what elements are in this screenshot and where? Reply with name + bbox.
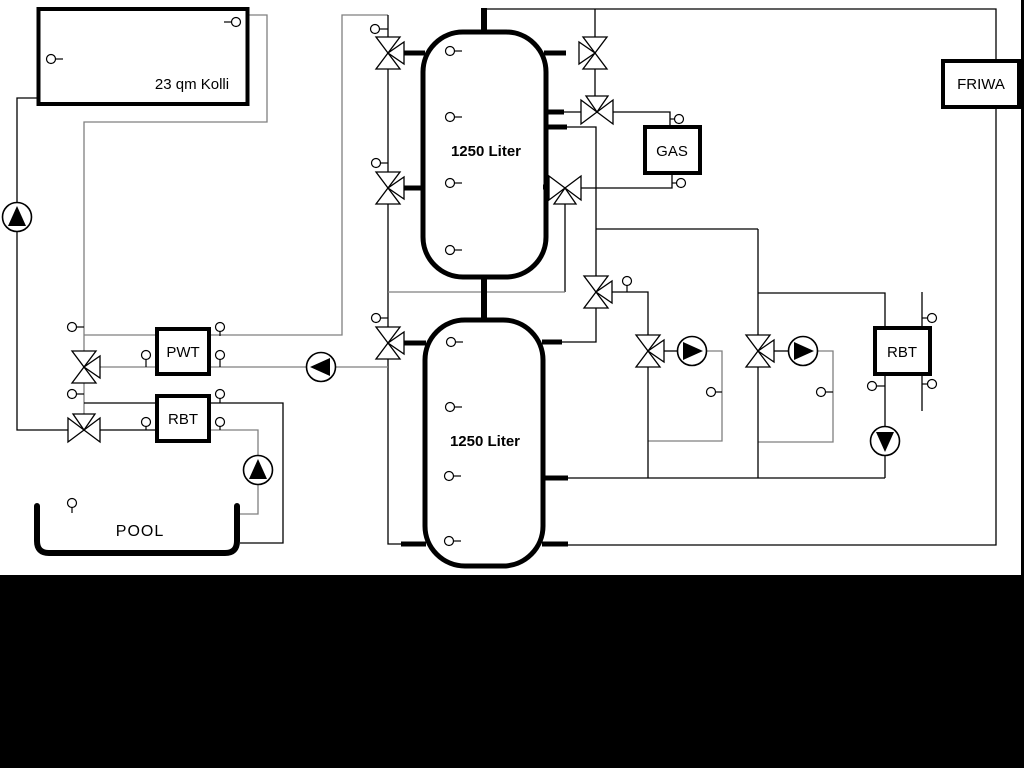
sensor-circuit1-flow (707, 388, 723, 397)
tank1-label: 1250 Liter (451, 143, 521, 160)
pwt-label: PWT (166, 344, 199, 361)
pool-label: POOL (116, 523, 164, 540)
sensor-pwt-top-right (216, 323, 225, 337)
boiler-return-pipe (581, 173, 672, 188)
circuit1-pump (678, 337, 707, 366)
sensor-rbt1-bottom-left (142, 418, 151, 431)
sensor-pwt-bottom-right (216, 351, 225, 368)
three-way-valve-solar-pool (68, 414, 100, 442)
collector-label: 23 qm Kolli (155, 76, 229, 93)
friwa-label: FRIWA (957, 76, 1005, 93)
sensor-pwt-left (68, 323, 85, 332)
sensor-riser-mid (372, 159, 389, 168)
circuit1-feed-pipe (612, 292, 648, 335)
sensor-distributor-branch (623, 277, 632, 293)
three-way-valve-solar-pwt (72, 351, 100, 383)
pwt-secondary-pump (307, 353, 336, 382)
sensor-rbt1-top-right (216, 390, 225, 404)
three-way-valve-heating-distributor (584, 276, 612, 308)
three-way-valve-tank2-top-left (376, 327, 404, 359)
pool-pump (244, 456, 273, 485)
sensor-boiler-return (672, 179, 686, 188)
solar-flow-pipe (17, 98, 68, 430)
solar-pump (3, 203, 32, 232)
sensor-rbt1-bottom-right (216, 418, 225, 431)
rbt2-label: RBT (887, 344, 917, 361)
rbt1-label: RBT (168, 411, 198, 428)
sensor-pwt-bottom-left (142, 351, 151, 368)
three-way-valve-boiler-return (549, 176, 581, 204)
three-way-valve-circuit1-mixer (636, 335, 664, 367)
three-way-valve-tank1-top-left (376, 37, 404, 69)
rbt2-return-pump (871, 427, 900, 456)
three-way-valve-circuit2-mixer (746, 335, 774, 367)
schematic-page: 23 qm Kolli 1250 Liter 1250 Liter PWT RB… (0, 0, 1024, 768)
sensor-pool (68, 499, 77, 514)
sensor-rbt2-right-bottom (922, 380, 937, 389)
sensor-riser-top (371, 25, 389, 34)
sensor-rbt1-left (68, 390, 85, 399)
hydraulic-schematic-canvas: 23 qm Kolli 1250 Liter 1250 Liter PWT RB… (0, 0, 1024, 768)
three-way-valve-tank1-mid-left (376, 172, 404, 204)
mid-distribution-pipe (562, 127, 596, 342)
sensor-riser-low (372, 314, 389, 323)
boiler-supply-pipe-right (613, 112, 670, 127)
bottom-black-mask (0, 575, 1024, 768)
circuit2-pump (789, 337, 818, 366)
tank2-label: 1250 Liter (450, 433, 520, 450)
sensor-rbt2-right-top (922, 314, 937, 323)
buffer-left-riser-pipe (388, 15, 402, 544)
rbt2-supply-pipe (758, 293, 885, 328)
sensor-rbt2-left (868, 382, 886, 391)
sensor-circuit2-flow (817, 388, 834, 397)
three-way-valve-tank1-top-right (579, 37, 607, 69)
three-way-valve-boiler-supply (581, 96, 613, 124)
gas-label: GAS (656, 143, 688, 160)
sensor-boiler-flow (670, 115, 684, 124)
dhw-top-and-right-pipe (484, 9, 996, 545)
